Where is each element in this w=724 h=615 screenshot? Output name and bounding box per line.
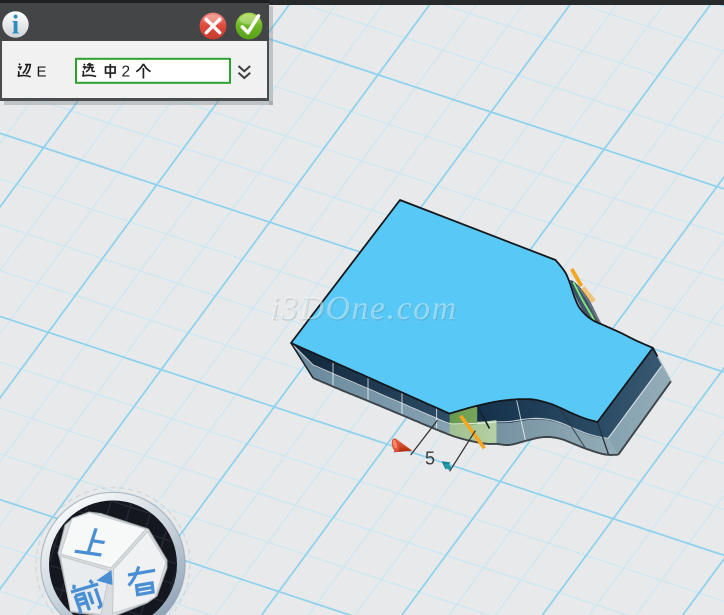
- svg-text:E: E: [37, 63, 47, 80]
- svg-text:i: i: [12, 10, 20, 40]
- svg-text:i3DOne.com: i3DOne.com: [270, 290, 458, 327]
- svg-text:2: 2: [122, 64, 131, 81]
- svg-text:5: 5: [425, 449, 435, 469]
